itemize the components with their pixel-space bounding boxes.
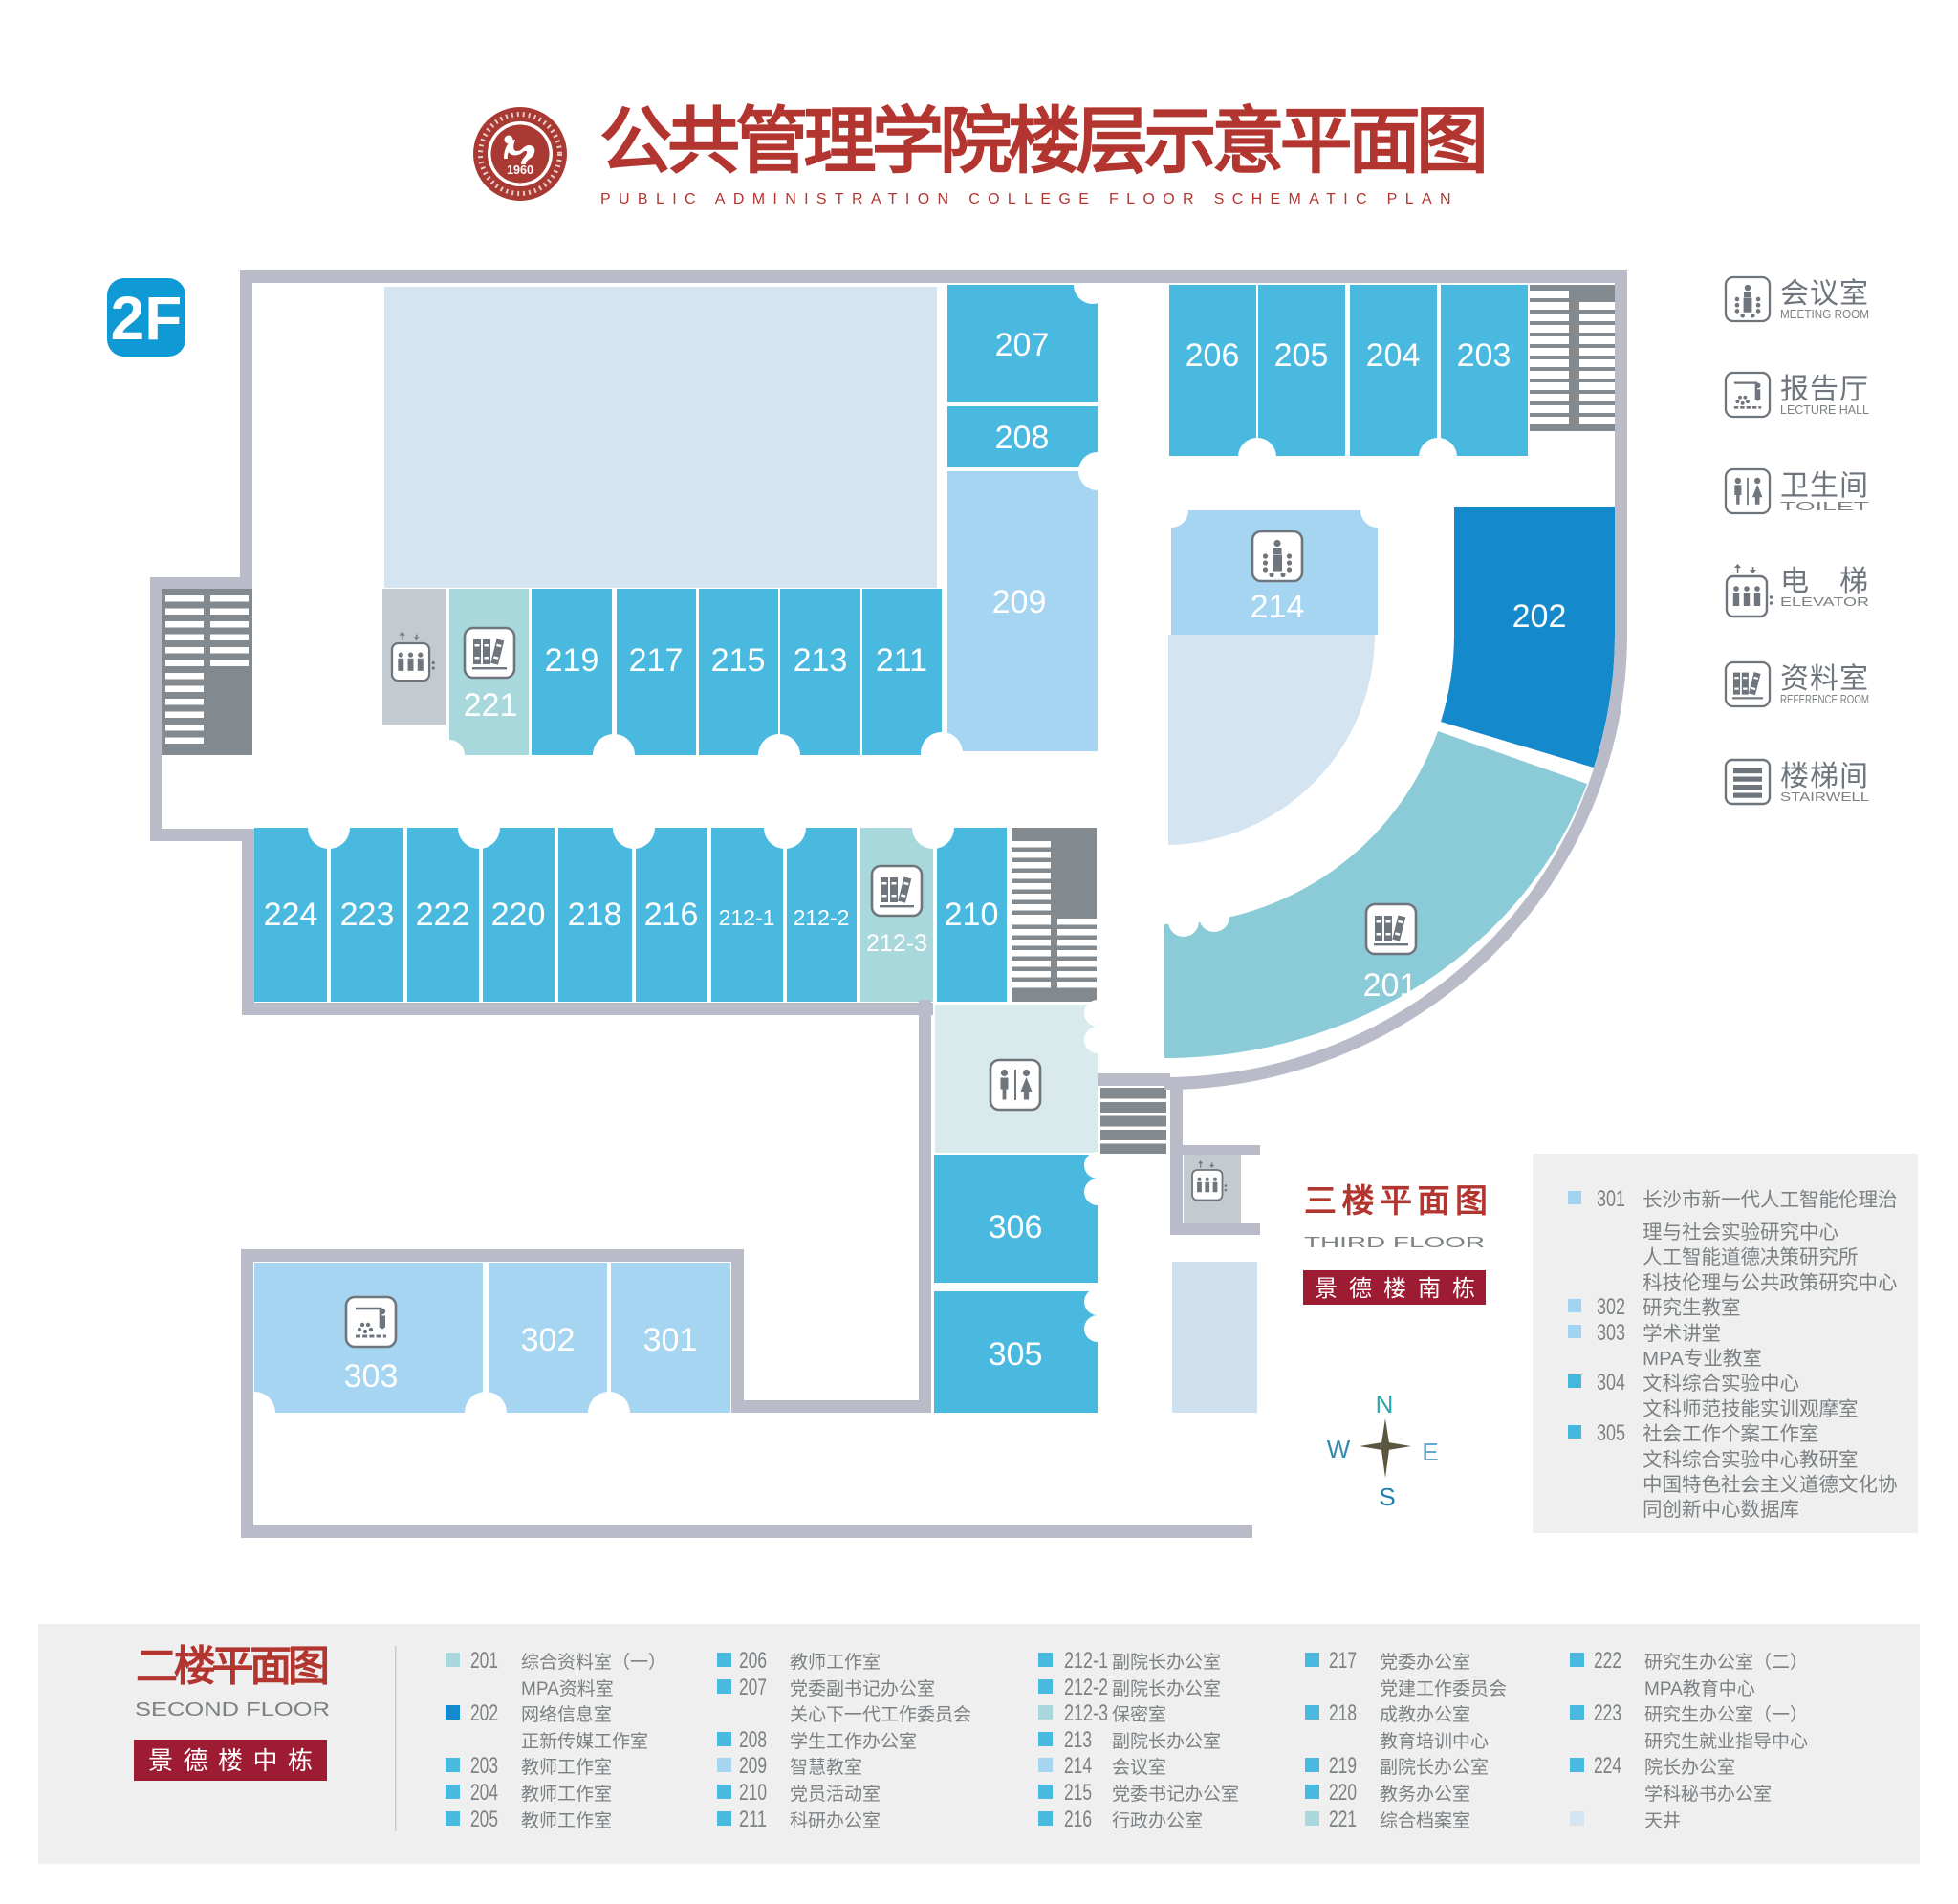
svg-text:教师工作室: 教师工作室	[521, 1784, 612, 1805]
svg-text:科研办公室: 科研办公室	[790, 1810, 881, 1831]
svg-text:科技伦理与公共政策研究中心: 科技伦理与公共政策研究中心	[1643, 1272, 1898, 1294]
svg-text:学科秘书办公室: 学科秘书办公室	[1644, 1784, 1772, 1805]
svg-text:221: 221	[1329, 1807, 1357, 1832]
svg-text:理与社会实验研究中心: 理与社会实验研究中心	[1643, 1222, 1838, 1244]
svg-text:天井: 天井	[1644, 1810, 1681, 1831]
svg-text:S: S	[1379, 1482, 1395, 1511]
svg-text:党建工作委员会: 党建工作委员会	[1380, 1678, 1507, 1699]
svg-text:会议室: 会议室	[1780, 278, 1868, 310]
svg-text:210: 210	[739, 1780, 767, 1806]
svg-text:216: 216	[644, 897, 699, 933]
svg-text:智慧教室: 智慧教室	[790, 1757, 862, 1778]
svg-text:教务办公室: 教务办公室	[1380, 1784, 1470, 1805]
svg-text:222: 222	[416, 897, 470, 933]
svg-text:ELEVATOR: ELEVATOR	[1780, 595, 1869, 609]
svg-text:SECOND FLOOR: SECOND FLOOR	[135, 1699, 330, 1720]
svg-text:社会工作个案工作室: 社会工作个案工作室	[1643, 1423, 1819, 1445]
svg-text:MPA专业教室: MPA专业教室	[1643, 1348, 1762, 1370]
svg-text:副院长办公室: 副院长办公室	[1112, 1731, 1221, 1752]
svg-text:203: 203	[1457, 337, 1512, 374]
svg-text:行政办公室: 行政办公室	[1112, 1810, 1203, 1831]
svg-text:副院长办公室: 副院长办公室	[1380, 1757, 1489, 1778]
svg-text:215: 215	[1064, 1780, 1092, 1806]
svg-text:224: 224	[264, 897, 318, 933]
svg-text:302: 302	[1597, 1294, 1625, 1320]
svg-text:教师工作室: 教师工作室	[521, 1757, 612, 1778]
svg-text:REFERENCE ROOM: REFERENCE ROOM	[1780, 693, 1869, 706]
svg-text:党委副书记办公室: 党委副书记办公室	[790, 1678, 935, 1699]
svg-text:218: 218	[568, 897, 622, 933]
svg-text:212-3: 212-3	[866, 930, 927, 957]
svg-text:教育培训中心: 教育培训中心	[1380, 1731, 1489, 1752]
svg-text:同创新中心数据库: 同创新中心数据库	[1643, 1499, 1799, 1521]
svg-text:217: 217	[629, 642, 684, 679]
svg-text:207: 207	[739, 1675, 767, 1700]
svg-text:211: 211	[876, 642, 927, 679]
svg-text:217: 217	[1329, 1648, 1357, 1674]
svg-text:会议室: 会议室	[1112, 1757, 1166, 1778]
svg-text:人工智能道德决策研究所: 人工智能道德决策研究所	[1643, 1246, 1859, 1268]
svg-text:223: 223	[1594, 1700, 1621, 1726]
svg-text:216: 216	[1064, 1807, 1092, 1832]
svg-text:219: 219	[1329, 1753, 1357, 1779]
svg-text:208: 208	[739, 1727, 767, 1753]
svg-text:206: 206	[1186, 337, 1240, 374]
svg-text:卫生间: 卫生间	[1780, 470, 1868, 502]
svg-text:E: E	[1422, 1438, 1438, 1466]
svg-text:2F: 2F	[111, 284, 183, 353]
svg-text:203: 203	[470, 1753, 498, 1779]
svg-text:218: 218	[1329, 1700, 1357, 1726]
svg-text:党员活动室: 党员活动室	[790, 1784, 881, 1805]
svg-text:W: W	[1327, 1435, 1351, 1463]
svg-text:212-3: 212-3	[1064, 1700, 1108, 1726]
svg-text:成教办公室: 成教办公室	[1380, 1704, 1470, 1725]
svg-text:224: 224	[1594, 1753, 1621, 1779]
svg-text:219: 219	[545, 642, 599, 679]
svg-text:党委办公室: 党委办公室	[1380, 1652, 1470, 1673]
svg-text:报告厅: 报告厅	[1780, 374, 1868, 405]
svg-text:研究生就业指导中心: 研究生就业指导中心	[1644, 1731, 1808, 1752]
svg-text:301: 301	[1597, 1186, 1625, 1212]
svg-text:网络信息室: 网络信息室	[521, 1704, 612, 1725]
svg-text:220: 220	[1329, 1780, 1357, 1806]
svg-text:MPA教育中心: MPA教育中心	[1644, 1678, 1755, 1699]
svg-text:303: 303	[344, 1358, 399, 1395]
svg-text:208: 208	[995, 420, 1050, 456]
svg-text:305: 305	[1597, 1420, 1625, 1446]
svg-text:党委书记办公室: 党委书记办公室	[1112, 1784, 1239, 1805]
svg-text:207: 207	[995, 327, 1050, 363]
svg-text:中国特色社会主义道德文化协: 中国特色社会主义道德文化协	[1643, 1474, 1898, 1496]
svg-text:文科综合实验中心教研室: 文科综合实验中心教研室	[1643, 1449, 1859, 1471]
svg-text:研究生办公室（二）: 研究生办公室（二）	[1644, 1652, 1808, 1673]
svg-text:STAIRWELL: STAIRWELL	[1780, 790, 1869, 804]
svg-text:文科师范技能实训观摩室: 文科师范技能实训观摩室	[1643, 1398, 1859, 1420]
svg-text:209: 209	[992, 584, 1047, 620]
svg-text:N: N	[1376, 1390, 1394, 1418]
svg-text:MPA资料室: MPA资料室	[521, 1678, 614, 1699]
svg-text:副院长办公室: 副院长办公室	[1112, 1678, 1221, 1699]
svg-text:211: 211	[739, 1807, 767, 1832]
svg-text:214: 214	[1064, 1753, 1092, 1779]
svg-text:301: 301	[643, 1322, 698, 1358]
svg-text:221: 221	[464, 687, 518, 724]
svg-text:研究生办公室（一）: 研究生办公室（一）	[1644, 1704, 1808, 1725]
svg-text:212-2: 212-2	[1064, 1675, 1108, 1700]
svg-text:202: 202	[1512, 598, 1567, 635]
svg-text:205: 205	[470, 1807, 498, 1832]
svg-text:212-2: 212-2	[794, 905, 850, 930]
svg-text:201: 201	[1363, 967, 1418, 1004]
svg-text:综合资料室（一）: 综合资料室（一）	[521, 1652, 666, 1673]
svg-text:MEETING ROOM: MEETING ROOM	[1780, 308, 1869, 321]
svg-text:THIRD FLOOR: THIRD FLOOR	[1304, 1235, 1485, 1251]
svg-text:305: 305	[989, 1336, 1043, 1373]
svg-text:205: 205	[1274, 337, 1329, 374]
svg-text:楼梯间: 楼梯间	[1780, 761, 1868, 792]
svg-text:201: 201	[470, 1648, 498, 1674]
svg-text:210: 210	[945, 897, 999, 933]
svg-text:教师工作室: 教师工作室	[790, 1652, 881, 1673]
svg-text:学术讲堂: 学术讲堂	[1643, 1323, 1721, 1345]
svg-text:学生工作办公室: 学生工作办公室	[790, 1731, 917, 1752]
svg-text:教师工作室: 教师工作室	[521, 1810, 612, 1831]
svg-text:景德楼中栋: 景德楼中栋	[148, 1746, 313, 1775]
svg-text:215: 215	[711, 642, 766, 679]
svg-text:长沙市新一代人工智能伦理治: 长沙市新一代人工智能伦理治	[1643, 1189, 1898, 1211]
svg-text:1960: 1960	[507, 163, 533, 177]
svg-text:206: 206	[739, 1648, 767, 1674]
svg-text:院长办公室: 院长办公室	[1644, 1757, 1735, 1778]
svg-text:220: 220	[491, 897, 546, 933]
svg-text:223: 223	[340, 897, 395, 933]
svg-text:保密室: 保密室	[1112, 1704, 1166, 1725]
svg-text:212-1: 212-1	[719, 905, 775, 930]
svg-text:二楼平面图: 二楼平面图	[136, 1643, 330, 1690]
svg-text:综合档案室: 综合档案室	[1380, 1810, 1470, 1831]
svg-text:研究生教室: 研究生教室	[1643, 1297, 1741, 1319]
svg-text:212-1: 212-1	[1064, 1648, 1108, 1674]
svg-text:副院长办公室: 副院长办公室	[1112, 1652, 1221, 1673]
svg-text:文科综合实验中心: 文科综合实验中心	[1643, 1373, 1799, 1395]
svg-text:LECTURE HALL: LECTURE HALL	[1780, 403, 1869, 417]
svg-text:关心下一代工作委员会: 关心下一代工作委员会	[790, 1704, 971, 1725]
svg-text:资料室: 资料室	[1780, 663, 1868, 695]
svg-text:302: 302	[521, 1322, 576, 1358]
svg-text:213: 213	[794, 642, 848, 679]
svg-text:204: 204	[470, 1780, 498, 1806]
svg-text:213: 213	[1064, 1727, 1092, 1753]
svg-text:正新传媒工作室: 正新传媒工作室	[521, 1731, 648, 1752]
svg-text:304: 304	[1597, 1370, 1625, 1396]
svg-text:PUBLIC ADMINISTRATION COLLEGE: PUBLIC ADMINISTRATION COLLEGE FLOOR SCHE…	[600, 191, 1459, 207]
svg-text:202: 202	[470, 1700, 498, 1726]
svg-text:209: 209	[739, 1753, 767, 1779]
svg-text:222: 222	[1594, 1648, 1621, 1674]
svg-text:三楼平面图: 三楼平面图	[1304, 1183, 1488, 1220]
svg-text:306: 306	[989, 1209, 1043, 1245]
svg-text:公共管理学院楼层示意平面图: 公共管理学院楼层示意平面图	[599, 101, 1489, 183]
svg-text:204: 204	[1366, 337, 1421, 374]
svg-text:214: 214	[1251, 589, 1305, 625]
svg-text:TOILET: TOILET	[1780, 500, 1870, 513]
svg-text:303: 303	[1597, 1320, 1625, 1346]
